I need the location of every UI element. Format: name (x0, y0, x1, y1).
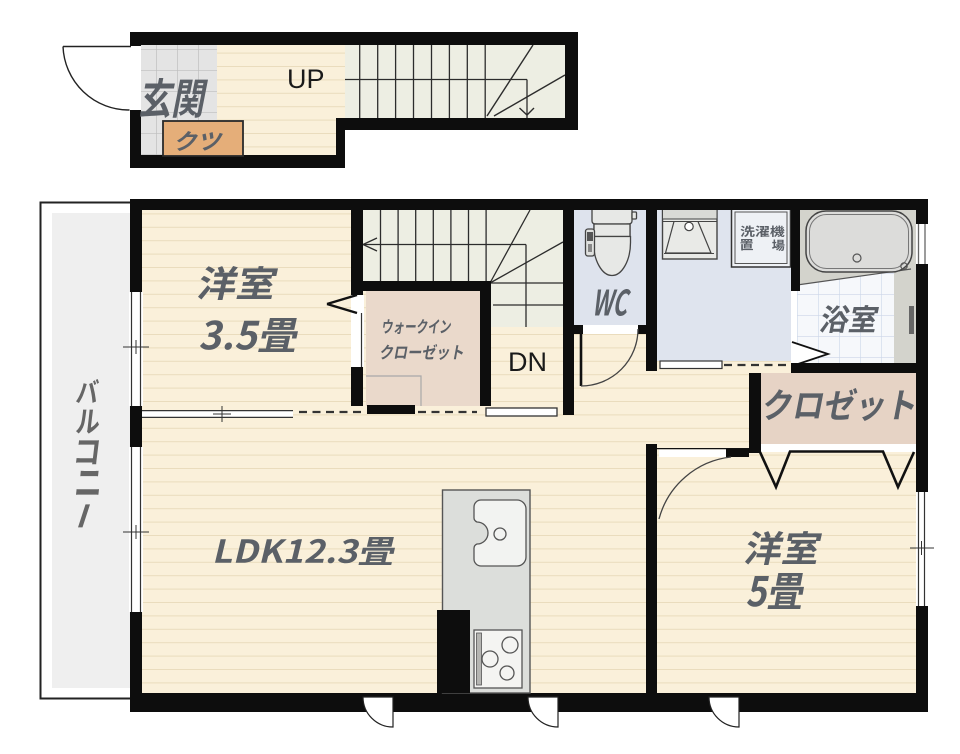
svg-text:UP: UP (287, 64, 325, 94)
svg-text:DN: DN (508, 347, 547, 377)
